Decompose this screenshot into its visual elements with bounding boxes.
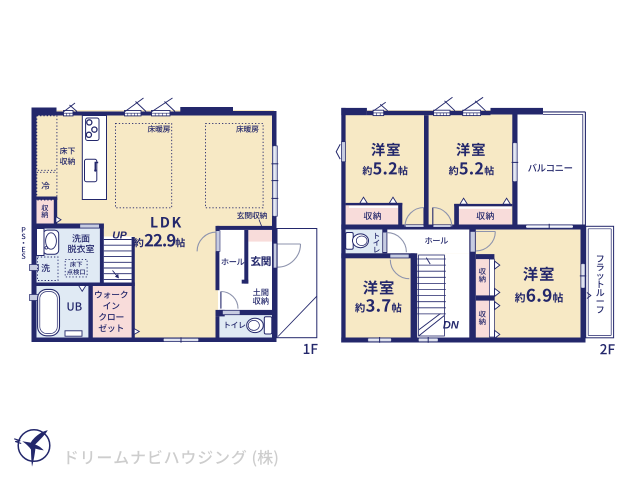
- svg-text:UP: UP: [112, 230, 128, 242]
- svg-text:DN: DN: [443, 320, 460, 332]
